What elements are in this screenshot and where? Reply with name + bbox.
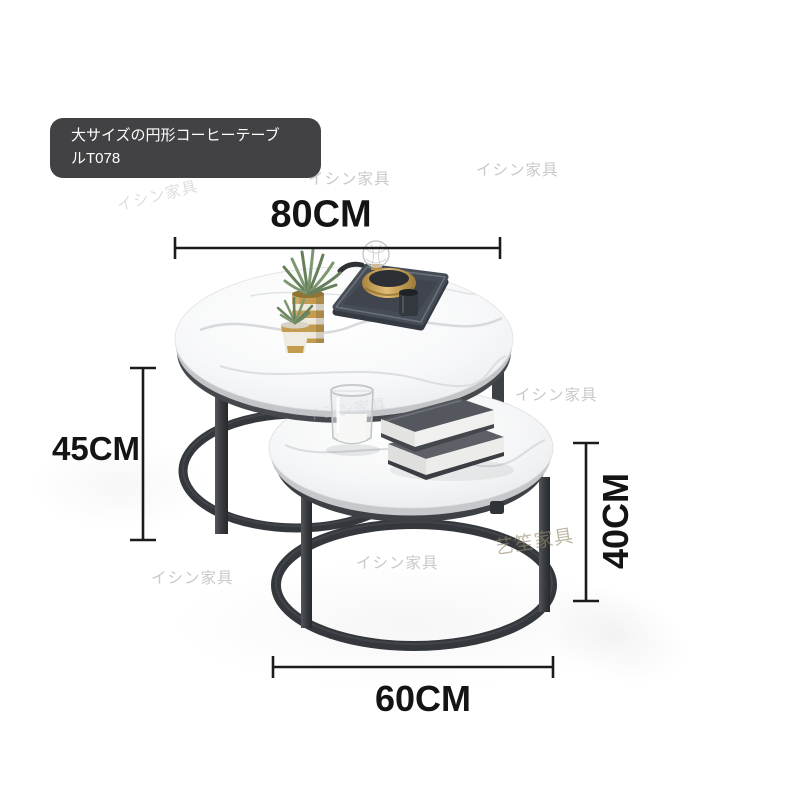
dimension-small-diameter: 60CM	[375, 678, 471, 720]
dimension-small-height: 40CM	[595, 473, 637, 569]
product-image-canvas: イシン家具 イシン家具 イシン家具 イシン家具 イシン家具 イシン家具 イシン家…	[0, 0, 800, 800]
small-table-left-leg	[301, 495, 312, 628]
dimension-top-diameter: 80CM	[270, 194, 371, 237]
dimension-large-height: 45CM	[52, 430, 140, 468]
product-title-line1: 大サイズの円形コーヒーテーブ	[71, 127, 280, 144]
product-title-line2: ルT078	[71, 150, 120, 167]
product-title-label: 大サイズの円形コーヒーテーブ ルT078	[50, 118, 321, 178]
watermark: イシン家具	[515, 383, 598, 405]
watermark: イシン家具	[356, 551, 439, 573]
watermark: イシン家具	[476, 158, 559, 180]
plant-pot-short	[281, 322, 309, 354]
watermark: イシン家具	[308, 167, 391, 189]
dark-glass-cup	[399, 289, 418, 316]
large-table-right-foot	[490, 501, 504, 514]
watermark: イシン家具	[151, 566, 234, 588]
